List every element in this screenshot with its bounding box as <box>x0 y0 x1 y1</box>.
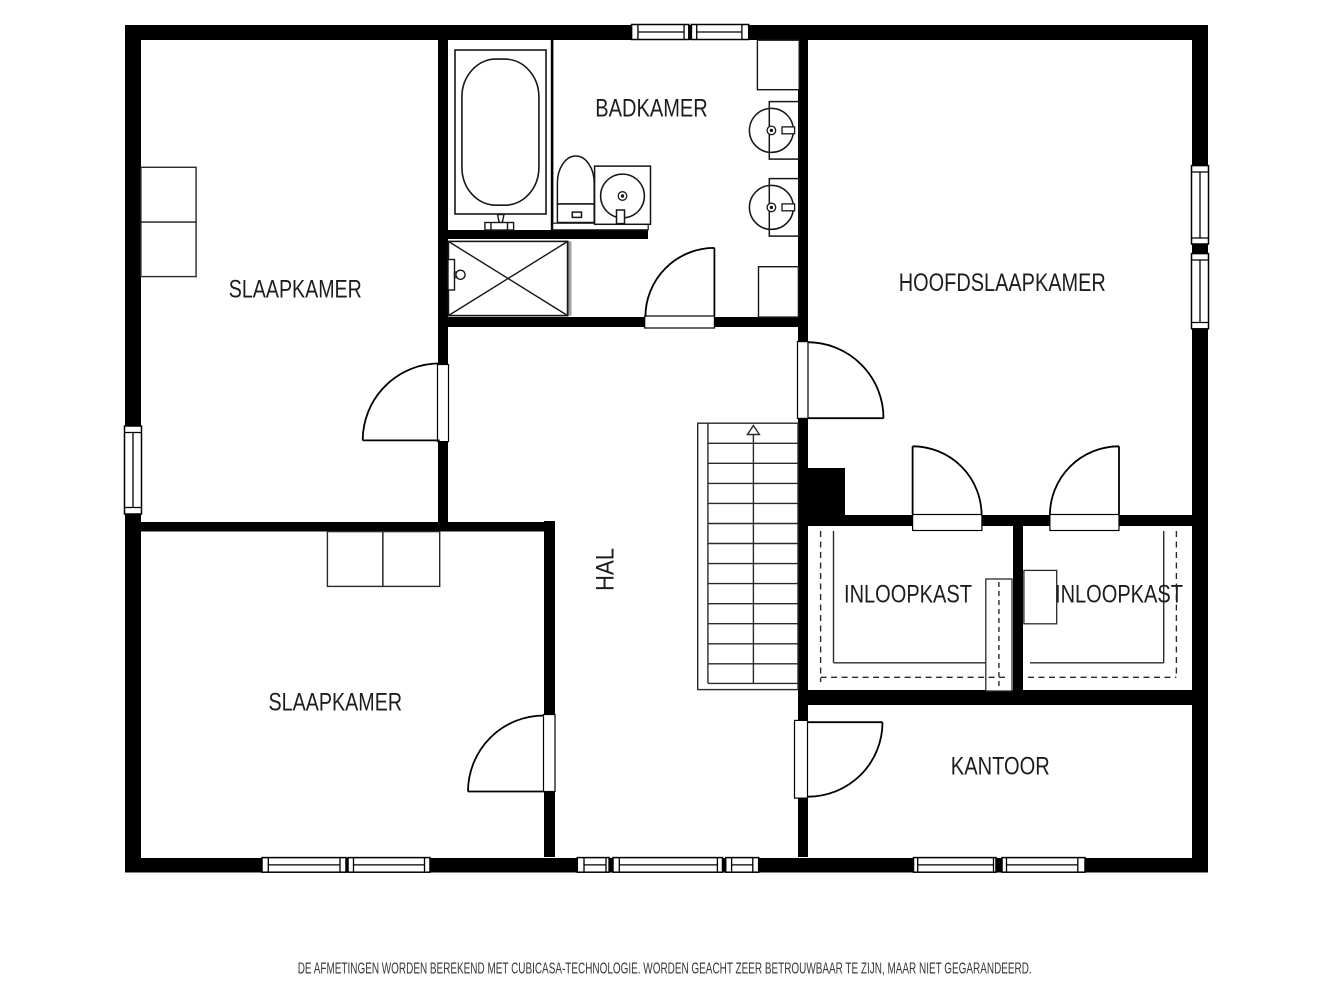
svg-text:DE AFMETINGEN WORDEN BEREKEND: DE AFMETINGEN WORDEN BEREKEND MET CUBICA… <box>298 961 1032 978</box>
svg-text:HOOFDSLAAPKAMER: HOOFDSLAAPKAMER <box>899 269 1106 297</box>
svg-text:SLAAPKAMER: SLAAPKAMER <box>229 276 362 304</box>
svg-text:HAL: HAL <box>592 548 620 591</box>
svg-text:KANTOOR: KANTOOR <box>951 752 1050 780</box>
svg-text:BADKAMER: BADKAMER <box>595 95 708 123</box>
svg-text:INLOOPKAST: INLOOPKAST <box>1055 581 1183 609</box>
svg-text:SLAAPKAMER: SLAAPKAMER <box>269 689 403 717</box>
svg-text:INLOOPKAST: INLOOPKAST <box>844 581 972 609</box>
